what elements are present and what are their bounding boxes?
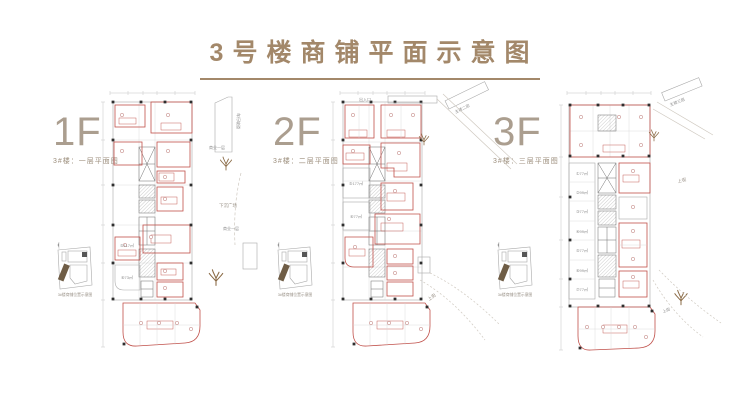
unit-area-label: ②99㎡ [576, 189, 588, 195]
road-dashed [420, 273, 500, 340]
entrance-label: 出入口 [359, 96, 371, 102]
unit-area-label: ⑤117㎡ [120, 242, 134, 248]
floor-plan-1f: ⑤117㎡ ⑥73㎡ 车行坡道 商业一层 下沉广场 商业一层 [95, 85, 325, 385]
road-lines [437, 94, 517, 169]
road-lines [653, 102, 713, 139]
unit-area-label: ④99㎡ [576, 228, 588, 234]
unit-area-label: ⑤77㎡ [576, 247, 588, 253]
svg-text:主楼二层: 主楼二层 [453, 102, 470, 114]
unit-area-label: ①77㎡ [576, 170, 588, 176]
adjacent-tower: 主楼二层 [445, 82, 492, 117]
page-title-wrap: 3号楼商铺平面示意图 [0, 33, 740, 80]
tree-icon [220, 157, 231, 170]
top-core [598, 115, 616, 131]
unit-area-label: ⑥77㎡ [350, 213, 362, 219]
ramp-hatch [215, 97, 232, 152]
floor-plan-3f: ①77㎡ ②99㎡ ③77㎡ ④99㎡ ⑤77㎡ ⑥99㎡ ⑦77㎡ 主楼三层 … [553, 85, 740, 385]
stair-hatch [243, 243, 257, 269]
street-stair-hatch [418, 257, 430, 273]
adjacent-tower: 主楼三层 [662, 78, 705, 109]
tree-icon [649, 130, 659, 141]
shop-label-boxes [603, 145, 640, 333]
ramp-label: 车行坡道 [236, 113, 242, 129]
stair-elevator-core [139, 147, 155, 297]
shop-label-boxes [346, 130, 407, 329]
level-label: 商业一层 [209, 144, 225, 150]
unit-area-label: ⑦77㎡ [576, 286, 588, 292]
level-label: 商业一层 [223, 225, 239, 231]
unit-area-label: ⑥73㎡ [121, 274, 133, 280]
unit-number-markers [120, 113, 192, 330]
stair-elevator-core [369, 147, 385, 297]
street-label: 上街 [677, 176, 688, 185]
street-label: 上街 [661, 306, 671, 314]
street-label: 上街 [426, 291, 438, 302]
shop-outlines [343, 105, 430, 346]
keymap-1f: 3#楼商铺位置示意图 [55, 240, 95, 298]
floor-plan-2f: ⑤177㎡ ⑥77㎡ 出入口 主楼二层 上街 [325, 85, 553, 385]
site-decorations-1f: 车行坡道 商业一层 下沉广场 商业一层 [209, 97, 257, 285]
site-boundary-dashed [235, 173, 241, 245]
poster-canvas: 3号楼商铺平面示意图 1F 3#楼：一层平面图 2F 3#楼：二层平面图 3F … [0, 0, 740, 416]
interior-divisions [343, 105, 430, 346]
page-title: 3号楼商铺平面示意图 [200, 33, 541, 80]
unit-area-label: ⑤177㎡ [349, 180, 363, 186]
road-dashed [653, 270, 721, 337]
sunken-plaza-label: 下沉广场 [219, 202, 237, 209]
tree-icon [675, 290, 687, 304]
unit-area-label: ③77㎡ [576, 208, 588, 214]
keymap-caption: 3#楼商铺位置示意图 [58, 292, 93, 297]
stair-elevator-core [598, 163, 616, 297]
site-decorations-3f: 主楼三层 上街 上街 [649, 78, 721, 337]
shop-outlines [578, 163, 655, 350]
tree-icon [209, 270, 222, 286]
unit-area-label: ⑥99㎡ [576, 267, 588, 273]
svg-text:主楼三层: 主楼三层 [669, 96, 686, 108]
unit-number-markers [351, 113, 422, 330]
keymap-highlighted-building [58, 263, 70, 281]
